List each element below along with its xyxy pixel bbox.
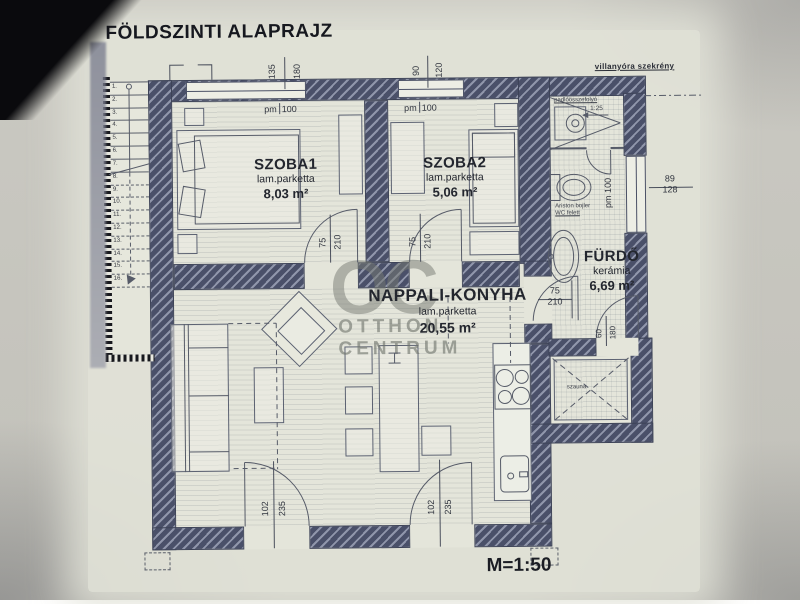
- chair: [421, 426, 451, 456]
- room-floor-type: lam.parketta: [221, 173, 351, 187]
- stair-step: 6.: [111, 146, 149, 159]
- coffee-table: [254, 367, 285, 423]
- sofa: [170, 324, 229, 473]
- stair-step: 10.: [111, 198, 149, 211]
- stair-step: 9.: [111, 185, 149, 198]
- dim-width: 90: [412, 66, 421, 76]
- shelf: [469, 231, 519, 255]
- dim-window-szoba1: 135 180: [268, 55, 302, 89]
- stair-step: 4.: [110, 121, 148, 134]
- opening-szoba2-door: [410, 261, 462, 287]
- sill-value: 100: [422, 102, 437, 112]
- room-label-furdo: FÜRDŐ kerámia 6,69 m²: [576, 248, 648, 296]
- window-pane-line: [399, 88, 465, 90]
- dim-window-furdo: 89 128: [651, 173, 689, 195]
- floor-stairwell: [112, 287, 151, 355]
- dim-window-szoba2: 90 120: [412, 54, 444, 88]
- room-area: 8,03 m²: [221, 186, 351, 204]
- dashdot-line: [644, 95, 702, 96]
- dim-width: 75: [318, 238, 327, 248]
- stair-step: 11.: [111, 211, 149, 224]
- wall-sauna-bottom: [529, 423, 653, 444]
- dim-width: 135: [268, 65, 277, 80]
- stair-step: 12.: [111, 223, 149, 236]
- dim-width: 102: [261, 502, 270, 517]
- nightstand: [184, 108, 204, 126]
- sill-prefix: pm: [404, 102, 417, 112]
- dining-table: [378, 345, 419, 472]
- kitchen-counter: [492, 343, 532, 501]
- washing-machine: [554, 106, 586, 140]
- room-area: 20,55 m²: [355, 317, 540, 337]
- wall-under-szoba-b: [358, 262, 410, 288]
- room-label-szoba1: SZOBA1 lam.parketta 8,03 m²: [221, 155, 351, 204]
- floor-szauna: [551, 356, 632, 424]
- dim-door-szoba1: 75 210: [318, 223, 342, 263]
- wall-bath-right-a: [623, 93, 647, 156]
- dim-height: 180: [293, 64, 302, 79]
- dim-width: 89: [665, 173, 675, 184]
- room-floor-type: lam.parketta: [395, 171, 515, 185]
- wall-bottom-a: [152, 527, 244, 551]
- boiler-note-line2: WC felett: [555, 210, 580, 217]
- wall-bottom-c: [474, 524, 552, 548]
- meter-cabinet-label: villanyóra szekrény: [595, 61, 675, 71]
- sill-text: 100: [603, 178, 613, 193]
- dim-door-sauna: 60 180: [595, 320, 617, 346]
- room-label-szoba2: SZOBA2 lam.parketta 5,06 m²: [395, 154, 515, 202]
- wall-middle-szoba: [364, 100, 390, 262]
- dim-height: 210: [547, 296, 562, 307]
- chair: [344, 346, 372, 374]
- room-floor-type: kerámia: [576, 265, 648, 279]
- stair-step: 16.: [112, 275, 150, 288]
- window-pane-line: [187, 90, 307, 92]
- slope-label: 1:25: [590, 105, 603, 113]
- stairs-bottom-bar: [106, 354, 155, 361]
- stair-step: 8.: [111, 172, 149, 185]
- dim-width: 75: [550, 285, 560, 296]
- sill-value: 100: [282, 103, 297, 113]
- wall-under-szoba-a: [174, 263, 305, 290]
- dim-height: 210: [423, 234, 432, 249]
- stair-step: 7.: [111, 159, 149, 172]
- wall-bottom-b: [309, 525, 410, 549]
- exterior-step: [144, 552, 170, 570]
- stair-step: 5.: [110, 134, 148, 147]
- dim-width: 60: [595, 329, 603, 338]
- scale-label: M=1:50: [486, 555, 551, 578]
- stair-step: 13.: [111, 236, 149, 249]
- sill-tick: [279, 103, 280, 114]
- chair: [345, 428, 373, 456]
- wall-under-szoba-c: [462, 261, 520, 288]
- sill-label-furdo: pm 100: [603, 158, 613, 208]
- room-name: NAPPALI-KONYHA: [355, 285, 540, 306]
- photo-corner-shadow: [0, 0, 160, 120]
- stair-step: 14.: [112, 249, 150, 262]
- room-area: 6,69 m²: [576, 278, 648, 296]
- dim-height: 120: [435, 63, 444, 78]
- dim-width: 75: [408, 237, 417, 247]
- stair-step: 15.: [112, 262, 150, 275]
- dim-height: 235: [444, 500, 453, 515]
- room-name: SZOBA2: [395, 154, 515, 172]
- dim-height: 180: [609, 326, 617, 339]
- wall-sauna-top-a: [548, 338, 596, 356]
- wall-bath-left-a: [524, 261, 552, 277]
- sill-text: pm: [603, 195, 613, 208]
- room-name: SZOBA1: [221, 155, 351, 173]
- dim-height: 235: [278, 502, 287, 517]
- dim-height: 128: [662, 184, 677, 195]
- photo-background: 1. 2. 3. 4. 5. 6. 7. 8. 9. 10. 11. 12. 1…: [0, 0, 800, 600]
- drain-label: padlóösszefolyó: [554, 97, 597, 105]
- dim-door-furdo: 75 210: [540, 285, 570, 307]
- sill-label-szoba1: pm 100: [264, 103, 297, 114]
- room-name: FÜRDŐ: [576, 248, 648, 266]
- room-label-szauna: szauna: [567, 384, 586, 391]
- dim-width: 102: [427, 500, 436, 515]
- sill-tick: [419, 102, 420, 113]
- dim-door-szoba2: 75 210: [408, 222, 432, 262]
- wardrobe-small: [494, 103, 518, 127]
- room-area: 5,06 m²: [395, 184, 515, 202]
- sill-prefix: pm: [264, 104, 277, 114]
- window-pane-line: [636, 157, 638, 234]
- dim-door-entry1: 102 235: [261, 485, 287, 533]
- sill-label-szoba2: pm 100: [404, 102, 437, 113]
- opening-szoba1-door: [305, 262, 358, 289]
- nightstand: [177, 234, 197, 254]
- wall-left: [148, 80, 177, 550]
- floorplan-photo: { "title": "FÖLDSZINTI ALAPRAJZ", "scale…: [0, 0, 800, 600]
- dim-door-entry2: 102 235: [427, 484, 453, 532]
- room-label-nappali: NAPPALI-KONYHA lam.parketta 20,55 m²: [355, 285, 540, 338]
- window-furdo: [626, 156, 647, 233]
- dim-height: 210: [333, 235, 342, 250]
- wall-szoba2-bath: [518, 77, 552, 264]
- chair: [345, 386, 373, 414]
